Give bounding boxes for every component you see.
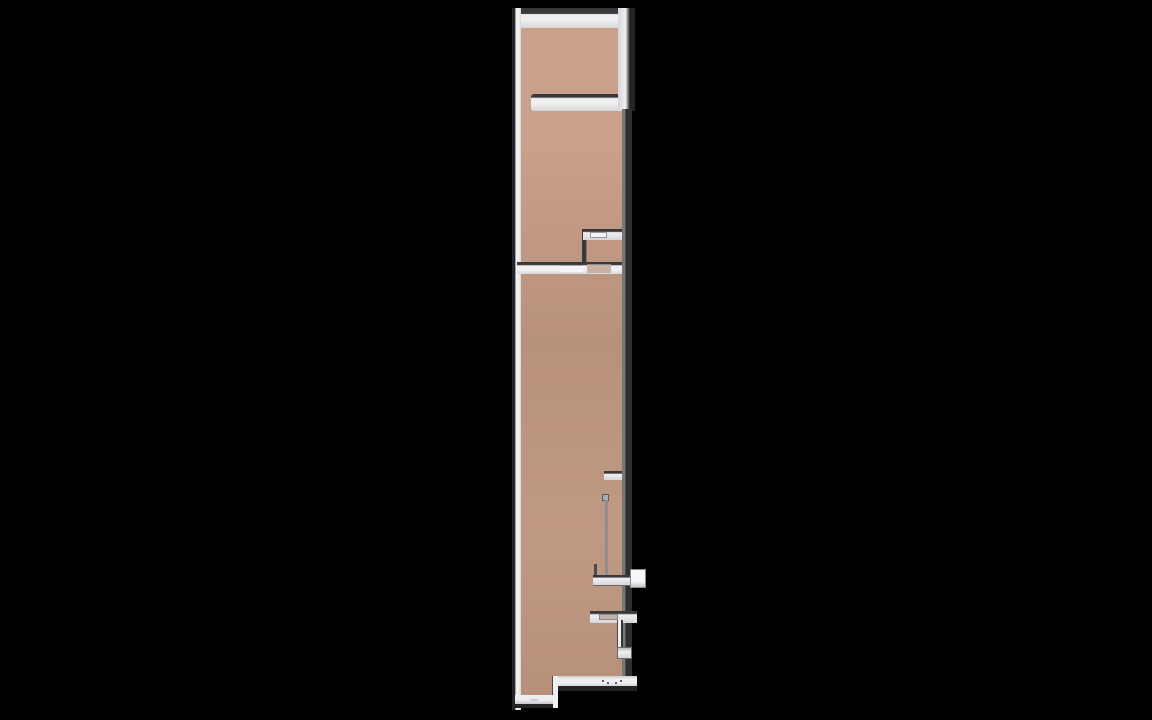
exterior-ledge <box>630 569 646 588</box>
threshold-mark <box>530 699 538 701</box>
interior-partition-wall <box>531 94 618 111</box>
lower-partition-wall <box>590 611 637 623</box>
lower-partition-door-opening <box>599 614 618 620</box>
wall-fixture-dot <box>607 682 609 684</box>
divider-door-threshold <box>560 265 583 272</box>
floor-plan <box>510 6 652 716</box>
corner-room-door-threshold <box>590 232 607 238</box>
right-exterior-wall-upper <box>618 8 635 111</box>
stair-railing <box>605 500 608 577</box>
divider-door-opening <box>587 264 611 273</box>
wall-stub <box>604 471 622 480</box>
entry-threshold <box>515 695 553 708</box>
plan-canvas: { "scene": { "description": "Top-down 3D… <box>0 0 1152 720</box>
top-exterior-wall <box>512 8 632 28</box>
bottom-wall <box>557 676 637 691</box>
right-exterior-glass-wall <box>622 109 632 691</box>
lower-wall-segment <box>617 647 632 659</box>
wall-fixture-dot <box>620 680 622 682</box>
corner-room-horizontal-wall <box>583 229 622 240</box>
wall-fixture-dot <box>602 680 604 682</box>
left-exterior-wall <box>512 8 521 710</box>
balcony-wall <box>593 575 632 586</box>
divider-wall <box>517 262 622 274</box>
wall-fixture-dot <box>615 682 617 684</box>
